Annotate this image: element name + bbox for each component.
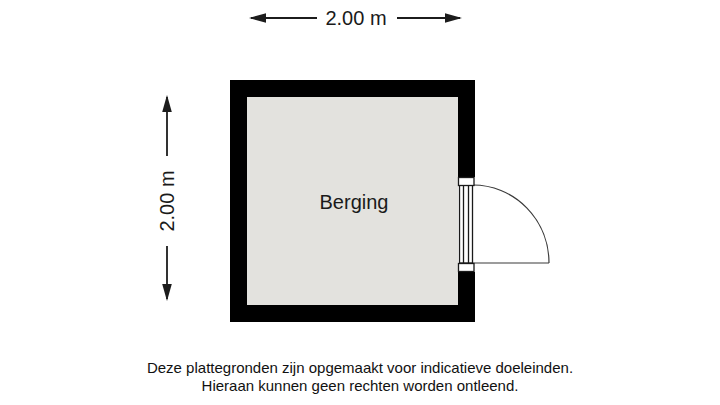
room-berging: Berging bbox=[230, 80, 475, 322]
disclaimer-line2: Hieraan kunnen geen rechten worden ontle… bbox=[0, 377, 720, 395]
door-jamb-bottom bbox=[459, 264, 475, 272]
dimension-left-label: 2.00 m bbox=[156, 170, 178, 231]
dimension-top-label: 2.00 m bbox=[325, 7, 386, 29]
floorplan-canvas: 2.00 m 2.00 m Berging bbox=[0, 0, 720, 405]
dimension-top: 2.00 m bbox=[249, 7, 462, 29]
disclaimer-line1: Deze plattegronden zijn opgemaakt voor i… bbox=[0, 359, 720, 377]
dimension-left: 2.00 m bbox=[156, 95, 178, 301]
disclaimer: Deze plattegronden zijn opgemaakt voor i… bbox=[0, 359, 720, 395]
arrow-up-icon bbox=[162, 95, 172, 112]
arrow-down-icon bbox=[162, 284, 172, 301]
room-label: Berging bbox=[320, 191, 389, 213]
door bbox=[458, 177, 549, 272]
arrow-left-icon bbox=[249, 13, 266, 23]
door-jamb-top bbox=[459, 178, 475, 186]
arrow-right-icon bbox=[445, 13, 462, 23]
floorplan-drawing: 2.00 m 2.00 m Berging bbox=[0, 0, 720, 405]
door-swing-arc bbox=[473, 185, 549, 263]
door-panel bbox=[460, 185, 473, 263]
